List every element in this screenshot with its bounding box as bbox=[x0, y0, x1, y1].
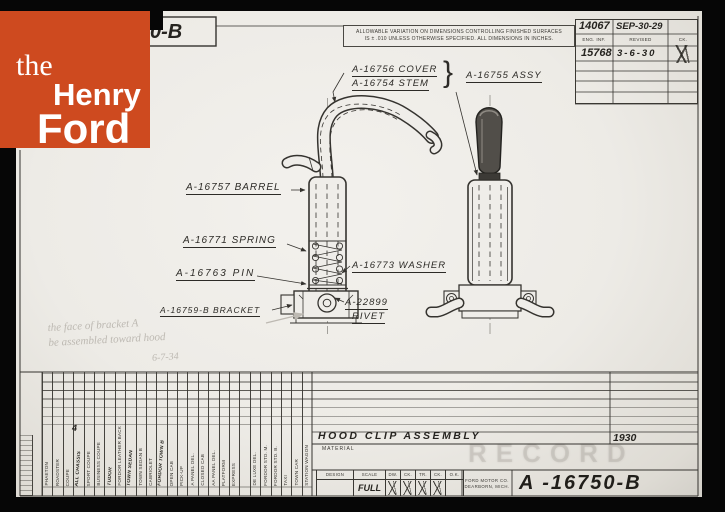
body-type-label: DE LUXE DEL. bbox=[253, 452, 258, 486]
approval-header: TR. bbox=[416, 470, 430, 480]
body-type-label: FORDOR TOWN B bbox=[158, 440, 166, 486]
company-line2: DEARBORN, MICH. bbox=[465, 484, 510, 489]
body-type-column bbox=[239, 372, 249, 496]
body-type-label: COUPE bbox=[66, 469, 71, 486]
year: 1930 bbox=[613, 432, 636, 444]
body-type-label: EXPRESS bbox=[232, 463, 237, 486]
company-box: FORD MOTOR CO. DEARBORN, MICH. bbox=[462, 470, 512, 496]
rev-header-eng-inf: ENG. INF. bbox=[575, 37, 613, 42]
approval-header: CK. bbox=[401, 470, 415, 480]
company-line1: FORD MOTOR CO. bbox=[465, 478, 509, 483]
approval-initials-scribble bbox=[417, 481, 429, 495]
body-type-label: TOWN SEDAN bbox=[127, 450, 135, 486]
body-type-column: TAXI bbox=[281, 372, 291, 496]
body-type-label: TUDOR bbox=[107, 467, 113, 486]
body-type-columns: PHAETONROADSTERCOUPEALL CHASSISSPORT COU… bbox=[42, 372, 312, 496]
body-type-column: BUSINESS COUPE bbox=[94, 372, 104, 496]
approval-value bbox=[401, 480, 415, 496]
photo-notch bbox=[149, 0, 163, 30]
approval-cell-design-0: DESIGN bbox=[317, 470, 353, 496]
label-rivet: RIVET bbox=[352, 311, 385, 324]
body-type-label: ROADSTER bbox=[56, 459, 61, 486]
body-type-label: TOWN CAR bbox=[295, 459, 300, 486]
approval-initials-scribble bbox=[402, 481, 414, 495]
body-type-label: SPORT COUPE bbox=[87, 451, 92, 486]
label-barrel: A-16757 BARREL bbox=[186, 182, 281, 195]
approval-initials-scribble bbox=[432, 481, 444, 495]
approval-header: O.K. bbox=[446, 470, 463, 480]
label-spring: A-16771 SPRING bbox=[183, 235, 276, 248]
approval-value bbox=[431, 480, 445, 496]
body-type-column: EXPRESS bbox=[229, 372, 239, 496]
logo-the: the bbox=[16, 49, 53, 83]
rev-row2-date: 3-6-30 bbox=[617, 48, 656, 59]
body-type-column: FORDOR STD. M. bbox=[260, 372, 270, 496]
body-type-label: STATION WAGON bbox=[305, 445, 310, 486]
approval-cell-scale-1: SCALEFULL bbox=[353, 470, 385, 496]
sheet-edge-ticks bbox=[20, 435, 33, 496]
body-type-label: AA PANEL DEL. bbox=[212, 450, 217, 486]
body-type-label: TAXI bbox=[284, 475, 289, 486]
body-type-label: CABRIOLET bbox=[149, 458, 154, 486]
approval-header: DESIGN bbox=[317, 470, 353, 480]
rev-header-revised: REVISED bbox=[613, 37, 668, 42]
approval-value bbox=[416, 480, 430, 496]
body-type-label: ALL CHASSIS bbox=[75, 450, 82, 486]
approval-cell-tr-4: TR. bbox=[415, 470, 430, 496]
pencil-note: the face of bracket A be assembled towar… bbox=[47, 315, 166, 351]
body-type-label: FORDOR LEATHER BACK bbox=[118, 426, 123, 486]
approval-cell-ok-6: O.K. bbox=[445, 470, 463, 496]
body-type-column: PLATFORM bbox=[219, 372, 229, 496]
photo-border-right bbox=[702, 0, 725, 512]
body-type-column: FORDOR TOWN B bbox=[156, 372, 166, 496]
body-type-column: A PANEL DEL. bbox=[187, 372, 197, 496]
body-type-label: BUSINESS COUPE bbox=[97, 442, 102, 486]
rev-row2-number: 15768 bbox=[581, 47, 612, 59]
body-type-column: STATION WAGON bbox=[302, 372, 312, 496]
assy-brace: } bbox=[443, 56, 453, 90]
body-type-label: A PANEL DEL. bbox=[191, 453, 196, 486]
body-type-column: DE LUXE DEL. bbox=[250, 372, 260, 496]
approval-initials-scribble bbox=[387, 481, 399, 495]
body-type-column: TOWN CAR bbox=[291, 372, 301, 496]
body-type-label: PICK-UP bbox=[180, 466, 185, 486]
body-type-column: TOWN SEDAN bbox=[125, 372, 135, 496]
logo-ford: Ford bbox=[37, 105, 130, 153]
body-type-column: FORDOR LEATHER BACK bbox=[115, 372, 125, 496]
rev-row1-number: 14067 bbox=[579, 20, 610, 32]
approval-cells: DESIGNSCALEFULLDW.CK.TR.CK.O.K. bbox=[316, 470, 464, 496]
body-type-column: COUPE bbox=[63, 372, 73, 496]
approval-value bbox=[317, 480, 353, 496]
henry-ford-logo: the Henry Ford bbox=[0, 11, 150, 148]
body-type-label: FORDOR STD. M. bbox=[264, 445, 269, 486]
approval-cell-dw-2: DW. bbox=[385, 470, 400, 496]
body-type-label: PLATFORM bbox=[222, 460, 227, 486]
label-pin: A-16763 PIN bbox=[176, 268, 255, 281]
record-watermark: RECORD bbox=[468, 438, 635, 469]
body-type-column: TOWN SEDAN B bbox=[136, 372, 146, 496]
label-washer: A-16773 WASHER bbox=[352, 260, 446, 273]
label-bracket: A-16759-B BRACKET bbox=[160, 305, 260, 317]
approval-value: FULL bbox=[354, 480, 385, 496]
label-cover: A-16756 COVER bbox=[352, 64, 437, 77]
tolerance-note: ALLOWABLE VARIATION ON DIMENSIONS CONTRO… bbox=[343, 25, 575, 47]
rev-row2-initials-scribble bbox=[669, 45, 697, 63]
qty-mark: 4 bbox=[72, 423, 77, 433]
body-type-column: ALL CHASSIS bbox=[73, 372, 83, 496]
rev-row1-date: SEP-30-29 bbox=[616, 21, 662, 32]
rev-header-ck: CK. bbox=[668, 37, 698, 42]
label-rivet-number: A-22899 bbox=[345, 297, 388, 310]
material-label: MATERIAL bbox=[322, 446, 355, 452]
pencil-note-date: 6-7-34 bbox=[152, 351, 179, 364]
scanned-drawing-photo: PHAETONROADSTERCOUPEALL CHASSISSPORT COU… bbox=[0, 0, 725, 512]
approval-header: DW. bbox=[386, 470, 400, 480]
approval-header: CK. bbox=[431, 470, 445, 480]
body-type-column: CABRIOLET bbox=[146, 372, 156, 496]
tolerance-line1: ALLOWABLE VARIATION ON DIMENSIONS CONTRO… bbox=[344, 29, 574, 36]
body-type-column: TUDOR bbox=[104, 372, 114, 496]
photo-border-bottom bbox=[0, 497, 725, 512]
drawing-title: HOOD CLIP ASSEMBLY bbox=[318, 430, 481, 442]
body-type-column: PHAETON bbox=[42, 372, 52, 496]
body-type-column: ROADSTER bbox=[52, 372, 62, 496]
drawing-number: A -16750-B bbox=[519, 472, 642, 495]
body-type-column: CLOSED CAB bbox=[198, 372, 208, 496]
approval-value bbox=[446, 480, 463, 496]
body-type-label: TOWN SEDAN B bbox=[139, 448, 144, 486]
label-assy: A-16755 ASSY bbox=[466, 70, 542, 83]
body-type-label: PHAETON bbox=[45, 462, 50, 486]
approval-header: SCALE bbox=[354, 470, 385, 480]
photo-border-top bbox=[0, 0, 725, 11]
body-type-column: PICK-UP bbox=[177, 372, 187, 496]
body-type-column: SPORT COUPE bbox=[84, 372, 94, 496]
body-type-label: CLOSED CAB bbox=[201, 454, 206, 486]
body-type-column: FORDOR STD. B. bbox=[271, 372, 281, 496]
tolerance-line2: IS ± .010 UNLESS OTHERWISE SPECIFIED. AL… bbox=[344, 36, 574, 43]
approval-cell-ck-3: CK. bbox=[400, 470, 415, 496]
body-type-column: AA PANEL DEL. bbox=[208, 372, 218, 496]
body-type-label: OPEN CAB bbox=[170, 461, 175, 486]
body-type-label: FORDOR STD. B. bbox=[274, 446, 279, 486]
body-type-column: OPEN CAB bbox=[167, 372, 177, 496]
approval-value bbox=[386, 480, 400, 496]
label-stem: A-16754 STEM bbox=[352, 78, 429, 91]
approval-cell-ck-5: CK. bbox=[430, 470, 445, 496]
